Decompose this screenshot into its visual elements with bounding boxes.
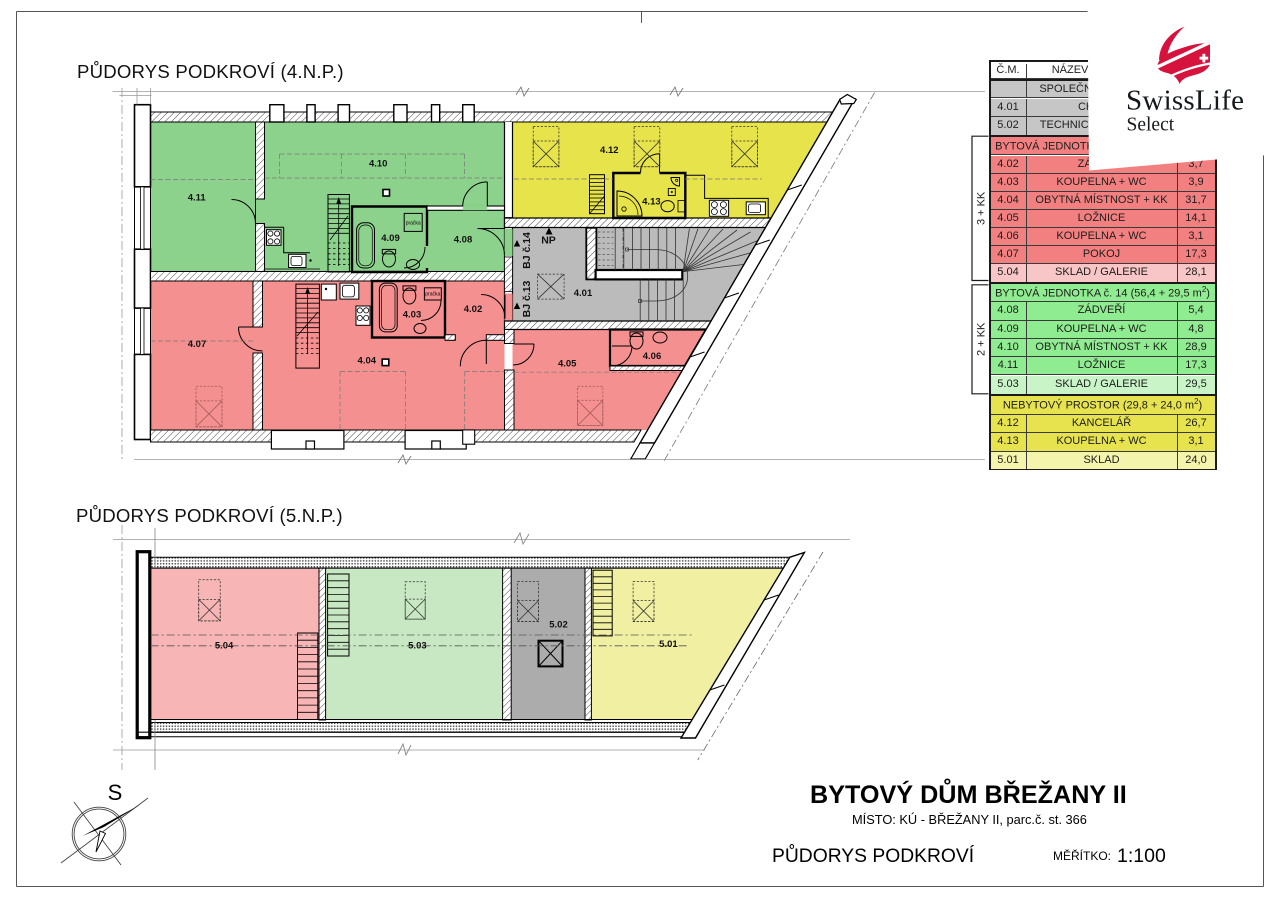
svg-text:SwissLife: SwissLife bbox=[1126, 85, 1244, 117]
svg-text:Select: Select bbox=[1127, 115, 1175, 136]
svg-text:2 + KK: 2 + KK bbox=[976, 322, 988, 356]
svg-text:3 + KK: 3 + KK bbox=[976, 191, 988, 225]
